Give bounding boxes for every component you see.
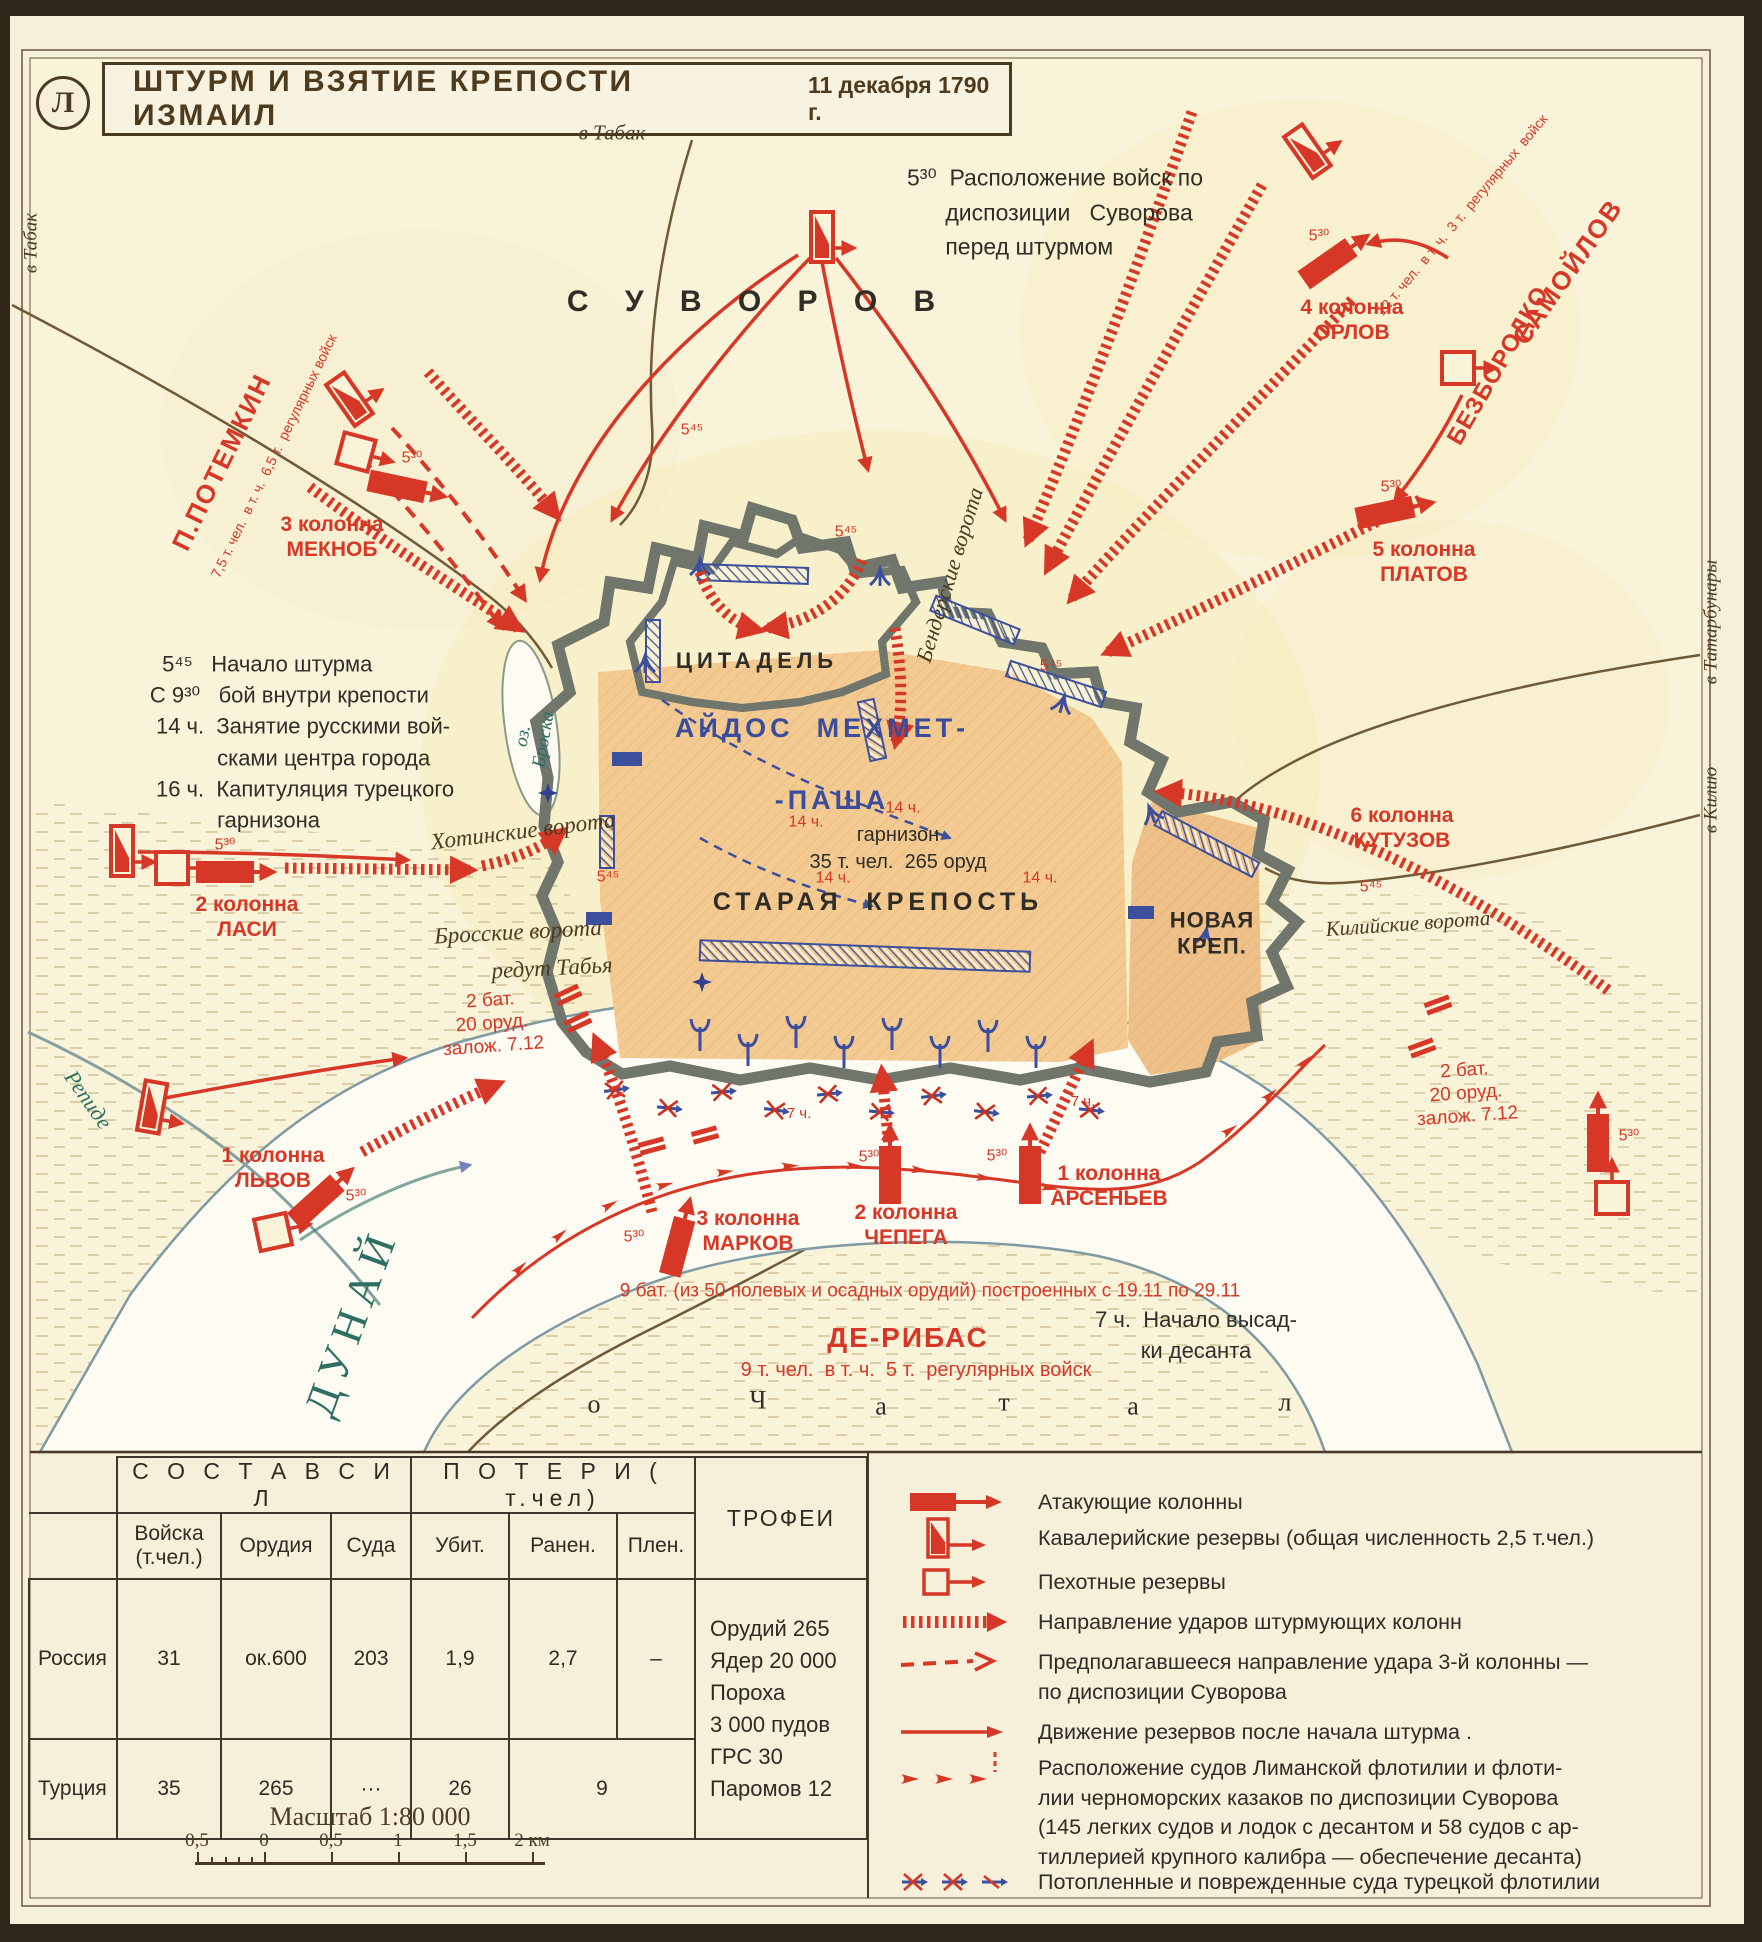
batteries-9-note: 9 бат. (из 50 полевых и осадных орудий) … [620,1281,1240,1304]
time-marker: 5³⁰ [1381,477,1402,496]
legend-item-text: Атакующие колонны [1038,1488,1702,1518]
samoylov-strength-note: 12 т. чел. в т. ч. 3 т. регулярных войск [1373,111,1551,319]
timeline-note: 5⁴⁵ Начало штурма С 9³⁰ бой внутри крепо… [150,648,454,835]
stats-table: С О С Т А В С И Л П О Т Е Р И ( т.чел) Т… [28,1456,868,1840]
time-marker: 14 ч. [885,798,920,817]
legend-item-text: Кавалерийские резервы (общая численность… [1038,1524,1702,1554]
time-marker: 7 ч. [787,1105,812,1123]
cell: – [617,1579,695,1739]
col-header: Убит. [411,1513,509,1579]
khotinskie-vorota-label: Хотинские ворота [429,806,617,856]
column-2-chepega-label: 2 колонна ЧЕПЕГА [855,1200,958,1250]
time-marker: 5⁴⁵ [1360,877,1382,896]
benderskie-vorota-label: Бендерские ворота [911,484,989,665]
sunken-ships-symbol [890,1862,1030,1902]
col-header: Орудия [221,1513,331,1579]
time-marker: 5⁴⁵ [681,420,703,439]
legend-item-text: Расположение судов Лиманской флотилии и … [1038,1754,1702,1873]
time-marker: 5³⁰ [859,1147,880,1166]
battery-note-left: 2 бат. 20 оруд. залож. 7.12 [439,986,545,1061]
redut-tabya-label: редут Табья [491,951,614,985]
scale-block: Масштаб 1:80 000 0,500,511,52 км [140,1802,600,1874]
column-6-kutuzov-label: 6 колонна КУТУЗОВ [1351,803,1454,853]
time-marker: 5³⁰ [987,1146,1008,1165]
column-1-lvov-label: 1 колонна ЛЬВОВ [222,1143,325,1193]
disposition-note: 5³⁰ Расположение войск по диспозиции Сув… [907,160,1203,264]
scale-tick-label: 0,5 [185,1830,209,1852]
kiliyskie-vorota-label: Килийские ворота [1325,906,1491,943]
time-marker: 14 ч. [815,868,850,887]
time-marker: 5³⁰ [1619,1126,1640,1145]
cell: 1,9 [411,1579,509,1739]
commander-suvorov-label: С У В О Р О В [567,284,949,320]
time-marker: 7 ч. [1071,1093,1096,1111]
col-header: Суда [331,1513,411,1579]
road-label-tabak-left: в Табак [21,213,44,273]
chatal-letter: о [588,1388,601,1419]
time-marker: 5⁴⁵ [1040,656,1062,675]
strike-direction-symbol [890,1602,1030,1642]
chatal-letter: т [998,1386,1009,1417]
scale-tick-label: 1,5 [453,1830,477,1852]
pasha-label: -ПАША [775,784,890,816]
chatal-letter: л [1279,1386,1292,1417]
column-3-meknob-label: 3 колонна МЕКНОБ [281,512,384,562]
col-header: Плен. [617,1513,695,1579]
road-label-tabak-top: в Табак [579,120,646,145]
legend-item-text: Пехотные резервы [1038,1568,1702,1598]
scale-tick-label: 2 км [514,1830,550,1852]
repide-river-label: Репиде [58,1066,117,1135]
lake-broska-label: оз. Броска [509,707,560,770]
losses-header: П О Т Е Р И ( т.чел) [411,1457,695,1513]
col-header: Войска (т.чел.) [117,1513,221,1579]
tsitadel-label: ЦИТАДЕЛЬ [676,648,838,674]
chatal-letter: а [875,1390,887,1421]
scale-label: Масштаб 1:80 000 [140,1802,600,1832]
infantry-reserve-symbol [890,1562,1030,1602]
table-row-russia: Россия 31 ок.600 203 1,9 2,7 – Орудий 26… [29,1579,867,1739]
cell: 31 [117,1579,221,1739]
road-label-tatarbunary: в Татарбунары [1701,560,1724,684]
row-label: Турция [29,1739,117,1839]
time-marker: 14 ч. [788,812,823,831]
cell: 203 [331,1579,411,1739]
time-marker: 5³⁰ [402,448,423,467]
legend-item-text: Движение резервов после начала штурма . [1038,1718,1702,1748]
map-plate: Л ШТУРМ И ВЗЯТИЕ КРЕПОСТИ ИЗМАИЛ 11 дека… [0,0,1762,1942]
chatal-letter: а [1127,1390,1139,1421]
road-label-kiliyu: в Килию [1701,767,1724,833]
column-3-markov-label: 3 колонна МАРКОВ [697,1206,800,1256]
chatal-letter: Ч [750,1384,767,1415]
time-marker: 5³⁰ [346,1186,367,1205]
column-1-arsenev-label: 1 колонна АРСЕНЬЕВ [1050,1161,1167,1211]
time-marker: 5⁴⁵ [835,522,857,541]
deribas-strength-note: 9 т. чел. в т. ч. 5 т. регулярных войск [741,1358,1092,1382]
time-marker: 14 ч. [1022,868,1057,887]
cell: 2,7 [509,1579,617,1739]
commander-bezborodko-label: БЕЗБОРОДКО [1442,281,1556,450]
composition-header: С О С Т А В С И Л [117,1457,411,1513]
cavalry-reserve-symbol [890,1518,1030,1558]
brosskie-vorota-label: Бросские ворота [434,914,603,950]
commander-deribas-label: ДЕ-РИБАС [827,1321,989,1355]
scale-tick-label: 1 [393,1830,403,1852]
row-label: Россия [29,1579,117,1739]
column-5-platov-label: 5 колонна ПЛАТОВ [1373,537,1476,587]
time-marker: 5³⁰ [624,1227,645,1246]
col-header: Ранен. [509,1513,617,1579]
cell: ок.600 [221,1579,331,1739]
aydos-mehmet-label: АЙДОС МЕХМЕТ- [675,712,969,744]
staraya-krepost-label: СТАРАЯ КРЕПОСТЬ [713,887,1043,917]
column-2-lasi-label: 2 колонна ЛАСИ [196,892,299,942]
novaya-krepost-label: НОВАЯ КРЕП. [1170,908,1255,961]
dunay-river-label: ДУНАЙ [293,1220,410,1423]
flotilla-symbol [890,1748,1030,1788]
trophies-header: ТРОФЕИ [695,1457,867,1579]
battery-note-right: 2 бат. 20 оруд. залож. 7.12 [1413,1056,1519,1131]
legend: Атакующие колонныКавалерийские резервы (… [890,1462,1702,1900]
legend-item-text: Потопленные и поврежденные суда турецкой… [1038,1868,1702,1898]
legend-item-text: Предполагавшееся направление удара 3-й к… [1038,1648,1702,1707]
time-marker: 5³⁰ [1309,226,1330,245]
time-marker: 5⁴⁵ [597,867,619,886]
scale-tick-label: 0,5 [319,1830,343,1852]
scale-tick-label: 0 [259,1830,269,1852]
trophies-cell: Орудий 265 Ядер 20 000 Пороха 3 000 пудо… [695,1579,867,1839]
legend-item-text: Направление ударов штурмующих колонн [1038,1608,1702,1638]
time-marker: 5³⁰ [215,835,236,854]
planned-direction-symbol [890,1642,1030,1682]
landing-note: 7 ч. Начало высад- ки десанта [1095,1305,1297,1367]
scale-bar: 0,500,511,52 км [195,1840,545,1874]
